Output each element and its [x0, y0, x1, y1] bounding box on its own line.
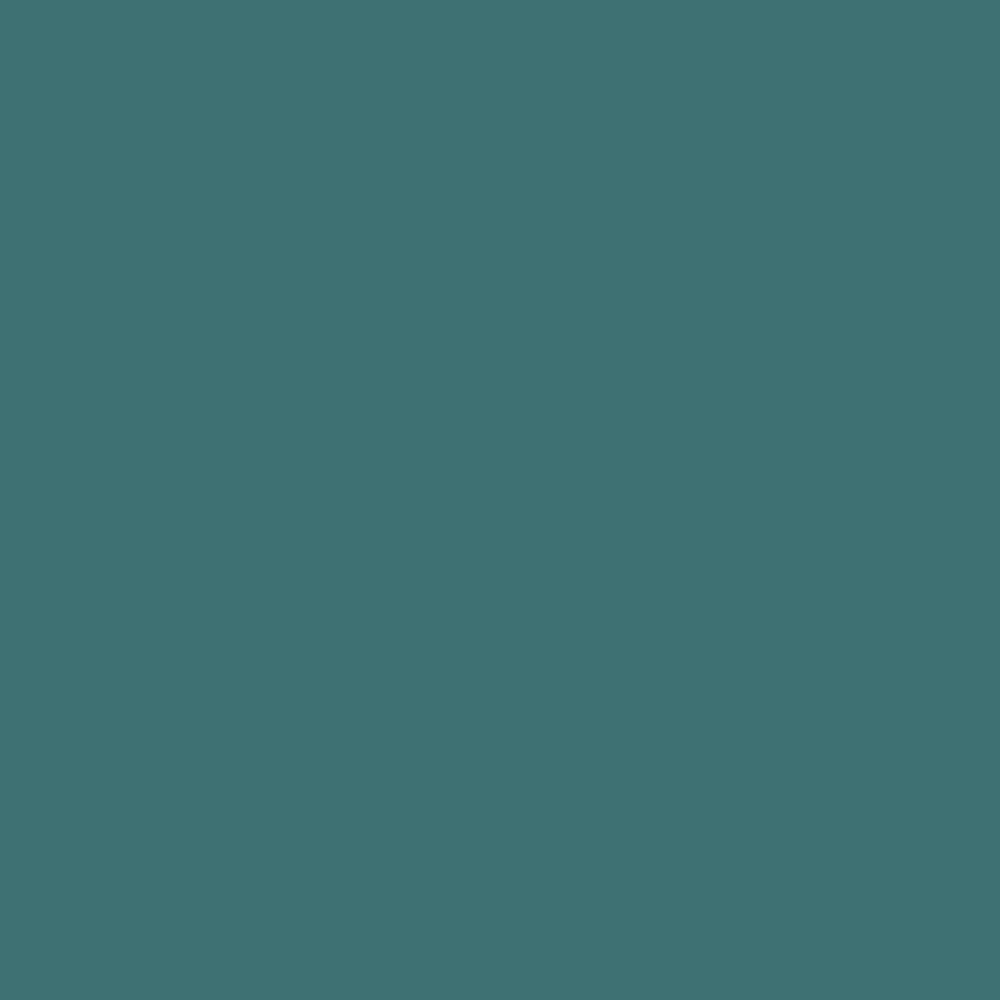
solid-teal-background: [0, 0, 1000, 1000]
